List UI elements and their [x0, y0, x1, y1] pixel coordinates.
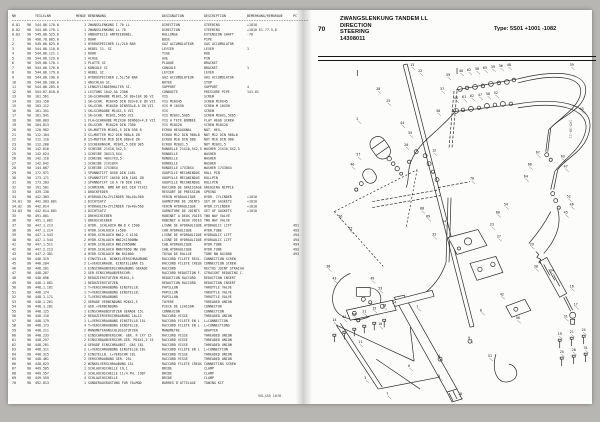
callout-number: 11 [358, 340, 362, 344]
callout-leader [334, 322, 337, 325]
callout-number: 20 [404, 143, 408, 147]
callout-leader [481, 312, 484, 315]
center-plate [448, 230, 487, 255]
callout-number: 16 [570, 284, 574, 288]
callout-leader [434, 153, 437, 156]
callout-number: 28 [376, 87, 380, 91]
callout-number: 24 [582, 328, 586, 332]
callout-leader [585, 350, 588, 353]
callout-number: 55 [408, 131, 412, 135]
callout-leader [402, 125, 405, 128]
header-separator [12, 21, 308, 23]
shaft-break-lines [372, 190, 440, 208]
callout-leader [571, 207, 574, 210]
callout-number: 43 [580, 107, 584, 111]
callout-leader [418, 308, 421, 311]
callout-number: 51 [488, 354, 492, 358]
callout-leader [517, 320, 520, 323]
callout-number: 30 [534, 264, 538, 268]
callout-leader [328, 268, 331, 271]
callout-number: 46 [570, 203, 574, 207]
lever-bracket [470, 256, 503, 280]
callout-leader [575, 306, 578, 309]
callout-number: 8 [480, 308, 482, 312]
callout-number: 34 [550, 268, 554, 272]
col-header-bemerkung: BEMERKUNG/REMARQUE [247, 14, 293, 20]
callout-number: 37 [440, 87, 444, 91]
title-line-2: DIRECTION [340, 23, 428, 30]
title-line-4: 14308011 [340, 36, 428, 43]
callout-number: 46 [350, 163, 354, 167]
callout-leader [471, 181, 474, 184]
hose-left-curve [406, 113, 454, 188]
callout-number: 56 [499, 64, 503, 68]
callout-leader [380, 290, 383, 293]
callout-number: 65 [483, 66, 487, 70]
callout-number: 58 [486, 92, 490, 96]
col-header-teilenr: TEILE+NR [35, 14, 74, 20]
col-header-benennung: BENENNUNG [88, 14, 162, 20]
callout-number: 19 [382, 303, 386, 307]
callout-leader [378, 91, 381, 94]
callout-number: 47 [564, 165, 568, 169]
cell-designation: BARRES D'ATTELAGE [162, 381, 204, 386]
callout-leader [422, 211, 425, 214]
callout-number: 2 [356, 117, 358, 121]
callout-leader [492, 69, 495, 72]
callout-number: 34 [442, 220, 446, 224]
callout-leader [583, 332, 586, 335]
callout-number: 31 [564, 314, 568, 318]
title-block: ZWANGSLENKUNG TANDEM LL DIRECTION STEERI… [340, 16, 428, 42]
callout-number: 57 [356, 153, 360, 157]
callout-leader [508, 67, 511, 70]
callout-number: 1 [416, 304, 418, 308]
callout-number: 38 [436, 109, 440, 113]
callout-leader [410, 135, 413, 138]
callout-number: 44 [400, 121, 404, 125]
callout-number: 52 [494, 91, 498, 95]
parts-table: NR TEILE+NR MENGE BENENNUNG DESIGNATION … [12, 14, 312, 386]
callout-number: 22 [418, 69, 422, 73]
callout-number: 61 [462, 95, 466, 99]
callout-number: 27 [497, 234, 501, 238]
cell-benennung: SONDERAUSRUSTUNG FUR 70+MOD [88, 381, 162, 386]
callout-leader [340, 219, 343, 222]
cell-menge: 1 [74, 381, 88, 386]
mid-hose-break [438, 91, 470, 188]
title-line-1: ZWANGSLENKUNG TANDEM LL [340, 16, 428, 23]
diagram-svg: 145-38-11 132228252445520574659374062586… [320, 60, 600, 404]
callout-number: 53 [378, 286, 382, 290]
callout-leader [565, 318, 568, 321]
callout-number: 41 [454, 96, 458, 100]
callout-number: 15 [372, 306, 376, 310]
callout-number: 25 [386, 99, 390, 103]
title-line-3: STEERING [340, 29, 428, 36]
callout-number: 39 [491, 65, 495, 69]
callout-number: 5 [438, 374, 440, 378]
callout-leader [334, 280, 337, 283]
callout-leader [498, 238, 501, 241]
callout-number: 10 [378, 322, 382, 326]
callout-number: 4 [438, 354, 440, 358]
cell-description: TOWING KIT [204, 381, 247, 386]
callout-leader [471, 98, 474, 101]
callout-leader [495, 95, 498, 98]
callout-leader [360, 344, 363, 347]
hose-down-right [529, 210, 559, 254]
callout-number: 47 [478, 93, 482, 97]
callout-leader [448, 77, 451, 80]
callout-leader [525, 179, 528, 182]
clevis-eye [570, 312, 576, 318]
callout-number: 31 [584, 346, 588, 350]
callout-leader [505, 207, 508, 210]
callout-number: 66 [528, 163, 532, 167]
callout-leader [573, 352, 576, 355]
cell-bemerkung [247, 381, 293, 386]
callout-number: 63 [561, 155, 565, 159]
callout-leader [497, 215, 500, 218]
callout-leader [571, 288, 574, 291]
col-header-designation: DESIGNATION [162, 14, 204, 20]
callout-number: 28 [572, 348, 576, 352]
callout-leader [438, 113, 441, 116]
callout-number: 38 [326, 264, 330, 268]
callout-leader [410, 368, 413, 371]
callout-number: 58 [475, 67, 479, 71]
callout-number: 40 [459, 69, 463, 73]
callout-number: 17 [574, 302, 578, 306]
callout-number: 49 [370, 276, 374, 280]
col-header-menge: MENGE [74, 14, 88, 20]
callout-leader [388, 103, 391, 106]
callout-number: 25 [560, 350, 564, 354]
col-header-blank [27, 14, 35, 20]
cell-teilenr: 492.813 [35, 381, 74, 386]
callout-leader [468, 72, 471, 75]
callout-layer: 1322282524455205746593740625865395648416… [326, 63, 588, 399]
callout-leader [412, 67, 415, 70]
callout-number: 52 [567, 195, 571, 199]
valve-block [356, 287, 370, 296]
hose-loop-1 [518, 73, 586, 151]
callout-number: 62 [467, 68, 471, 72]
callout-number: 14 [332, 318, 336, 322]
callout-leader [501, 296, 504, 299]
callout-number: 13 [410, 63, 414, 67]
callout-leader [489, 358, 492, 361]
callout-leader [344, 319, 347, 322]
callout-leader [366, 380, 369, 383]
callout-number: 62 [470, 94, 474, 98]
callout-number: 64 [524, 175, 528, 179]
callout-leader [531, 246, 534, 249]
gas-accumulator-large [367, 133, 394, 162]
callout-leader [406, 147, 409, 150]
callout-number: 18 [458, 392, 462, 396]
callout-number: 9 [468, 336, 470, 340]
callout-leader [535, 268, 538, 271]
callout-leader [487, 96, 490, 99]
callout-leader [460, 73, 463, 76]
callout-leader [352, 167, 355, 170]
callout-number: 3 [364, 376, 366, 380]
callout-number: 48 [507, 63, 511, 67]
callout-leader [442, 91, 445, 94]
cell-nr: 70 [12, 381, 27, 386]
callout-leader [565, 169, 568, 172]
footer-code: VGL/A9 1076 [258, 394, 281, 398]
parts-table-header: NR TEILE+NR MENGE BENENNUNG DESIGNATION … [12, 14, 312, 20]
callout-number: 26 [352, 312, 356, 316]
callout-leader [491, 227, 494, 230]
projection-lines [334, 170, 417, 267]
callout-number: 39 [570, 63, 574, 67]
table-row: 70 90 492.813 1 SONDERAUSRUSTUNG FUR 70+… [12, 381, 312, 386]
callout-leader [358, 121, 361, 124]
callout-number: 59 [446, 73, 450, 77]
small-bracket [506, 299, 531, 317]
cylinder-rod [564, 296, 573, 311]
callout-number: 68 [420, 207, 424, 211]
callout-leader [559, 336, 562, 339]
callout-leader [571, 334, 574, 337]
parts-rows: 0.01 90 544.06.170.0 1 ZWANGSLENKUNG I 7… [12, 23, 312, 386]
callout-leader [380, 326, 383, 329]
callout-number: 69 [426, 215, 430, 219]
callout-number: 67 [536, 151, 540, 155]
callout-leader [463, 99, 466, 102]
col-header-description: DESCRIPTION [204, 14, 247, 20]
callout-number: 6 [408, 364, 410, 368]
callout-number: 54 [504, 203, 508, 207]
callout-number: 50 [516, 316, 520, 320]
page-fold-shadow [296, 10, 312, 404]
callout-leader [479, 97, 482, 100]
callout-leader [529, 167, 532, 170]
header-rule-thick [318, 56, 596, 57]
callout-number: 36 [338, 215, 342, 219]
callout-leader [537, 155, 540, 158]
callout-number: 21 [362, 309, 366, 313]
callout-number: 21 [570, 330, 574, 334]
callout-number: 29 [530, 242, 534, 246]
callout-number: 70 [470, 177, 474, 181]
callout-leader [484, 70, 487, 73]
callout-number: 22 [342, 315, 346, 319]
callout-number: 43 [332, 276, 336, 280]
callout-leader [428, 219, 431, 222]
callout-leader [565, 215, 568, 218]
callout-leader [571, 67, 574, 70]
callout-leader [476, 71, 479, 74]
callout-number: 12 [432, 149, 436, 153]
callout-leader [420, 73, 423, 76]
callout-leader [388, 396, 391, 399]
callout-number: 23 [490, 223, 494, 227]
cell-90: 90 [27, 381, 35, 386]
page-number: 70 [318, 26, 325, 33]
hook-rod [494, 354, 516, 382]
callout-number: 33 [432, 232, 436, 236]
callout-number: 7 [386, 392, 388, 396]
callout-leader [568, 199, 571, 202]
callout-leader [500, 68, 503, 71]
callout-number: 19 [558, 332, 562, 336]
catalog-page: NR TEILE+NR MENGE BENENNUNG DESIGNATION … [8, 10, 592, 404]
diagram-linework [332, 64, 590, 402]
callout-number: 42 [500, 292, 504, 296]
scanned-catalog-page: { "header": { "page_no": "70", "title_li… [0, 0, 600, 422]
callout-leader [561, 354, 564, 357]
callout-leader [434, 236, 437, 239]
callout-number: 24 [392, 300, 396, 304]
callout-number: 35 [348, 227, 352, 231]
type-label: Type: 5S01 +1001 -1082 [494, 26, 556, 32]
col-header-nr: NR [12, 14, 27, 20]
drawing-number-vertical: 145-38-11 [569, 120, 573, 138]
callout-number: 60 [496, 211, 500, 215]
callout-leader [358, 157, 361, 160]
callout-leader [372, 280, 375, 283]
callout-number: 45 [564, 211, 568, 215]
